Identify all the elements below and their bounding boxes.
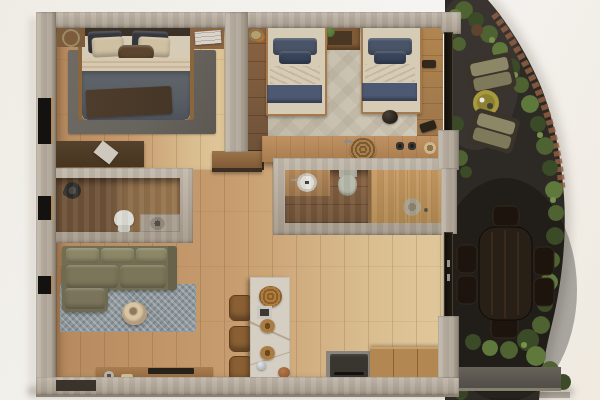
window-bathroom-left <box>38 196 53 220</box>
sofa-seat-cushion-1 <box>66 265 118 288</box>
door-handle-2 <box>447 274 450 281</box>
burner-knob-2 <box>408 142 416 150</box>
dining-chair-right-2 <box>534 278 554 306</box>
counter-faucet <box>344 140 352 143</box>
corridor-console <box>212 151 262 172</box>
decor-dish <box>249 29 263 41</box>
shower-deck <box>368 170 443 223</box>
basin-counter-1 <box>140 214 180 232</box>
sheet-texture-right <box>365 64 415 82</box>
kitchen-cabinets <box>370 347 443 380</box>
foot-blanket-left <box>267 85 322 103</box>
pouf <box>122 302 147 325</box>
floor-strip-twin-left <box>248 28 268 152</box>
wall-bathroom-right <box>441 168 457 234</box>
burner-knob-1 <box>396 142 404 150</box>
window-bedroom-left <box>38 98 53 144</box>
planter-pot <box>471 24 483 36</box>
wall-pier-right-1 <box>438 130 459 170</box>
bathroom-one <box>40 168 193 243</box>
sink-counter-2 <box>285 170 330 196</box>
toilet-1 <box>114 210 134 227</box>
sofa-back-cushion-3 <box>136 248 167 263</box>
foot-blanket-right <box>362 83 417 101</box>
wall-corner-topright <box>441 12 461 34</box>
floor-bowl <box>382 110 398 124</box>
silver-pot <box>257 361 266 370</box>
round-plate-1 <box>260 319 275 333</box>
wardrobe-items-top <box>422 60 436 68</box>
sofa-back-cushion-1 <box>66 248 99 263</box>
toilet-1-base <box>118 225 130 232</box>
glass-door-bedroom <box>444 32 453 132</box>
shower-head-2 <box>403 198 421 216</box>
wall-divider-bedrooms <box>225 12 248 152</box>
shelf-ring-decor <box>62 29 80 47</box>
toilet-2-tank <box>339 170 357 177</box>
dining-chair-left-1 <box>457 245 477 273</box>
sofa-back-cushion-2 <box>101 248 134 263</box>
wall-pier-right-2 <box>438 316 459 378</box>
magazines <box>195 30 222 45</box>
square-plate <box>257 306 272 319</box>
table-cup <box>480 98 485 103</box>
sink-2 <box>297 173 317 192</box>
basin-1 <box>150 217 165 230</box>
chaise-cushion <box>65 288 105 309</box>
toilet-2 <box>338 175 357 196</box>
throw-blanket <box>85 86 172 118</box>
floorplan-render <box>0 0 600 400</box>
stone-ledge-shadow <box>452 392 570 398</box>
sink-2-faucet <box>291 179 298 181</box>
bathroom-two <box>273 158 442 235</box>
table-dish <box>487 103 493 109</box>
shower-head-1 <box>64 182 81 199</box>
window-living-left <box>38 276 53 294</box>
stone-ledge-highlight <box>449 388 561 391</box>
woven-hat <box>259 286 282 307</box>
bathroom-one-floor <box>56 178 180 232</box>
door-handle-1 <box>447 260 450 267</box>
dining-chair-right-1 <box>534 247 554 275</box>
pillow-navy-right-2 <box>374 51 406 64</box>
sheet-texture-left <box>270 66 320 84</box>
pillow-navy-left-2 <box>279 51 311 64</box>
counter-canister <box>424 142 436 154</box>
wall-bottom <box>36 377 459 397</box>
bathroom-two-floor <box>285 170 440 223</box>
sofa-armrest <box>168 246 177 290</box>
entry-mat <box>56 380 96 391</box>
round-plate-2 <box>260 346 275 360</box>
stone-ledge <box>449 367 561 391</box>
console-slot <box>148 368 194 374</box>
left-wall-shadow <box>27 18 36 390</box>
dining-chair-left-2 <box>457 276 477 304</box>
dining-chair-top <box>493 206 519 226</box>
wall-top <box>36 12 461 28</box>
stove-handle <box>334 372 364 375</box>
sofa-seat-cushion-2 <box>120 265 166 288</box>
